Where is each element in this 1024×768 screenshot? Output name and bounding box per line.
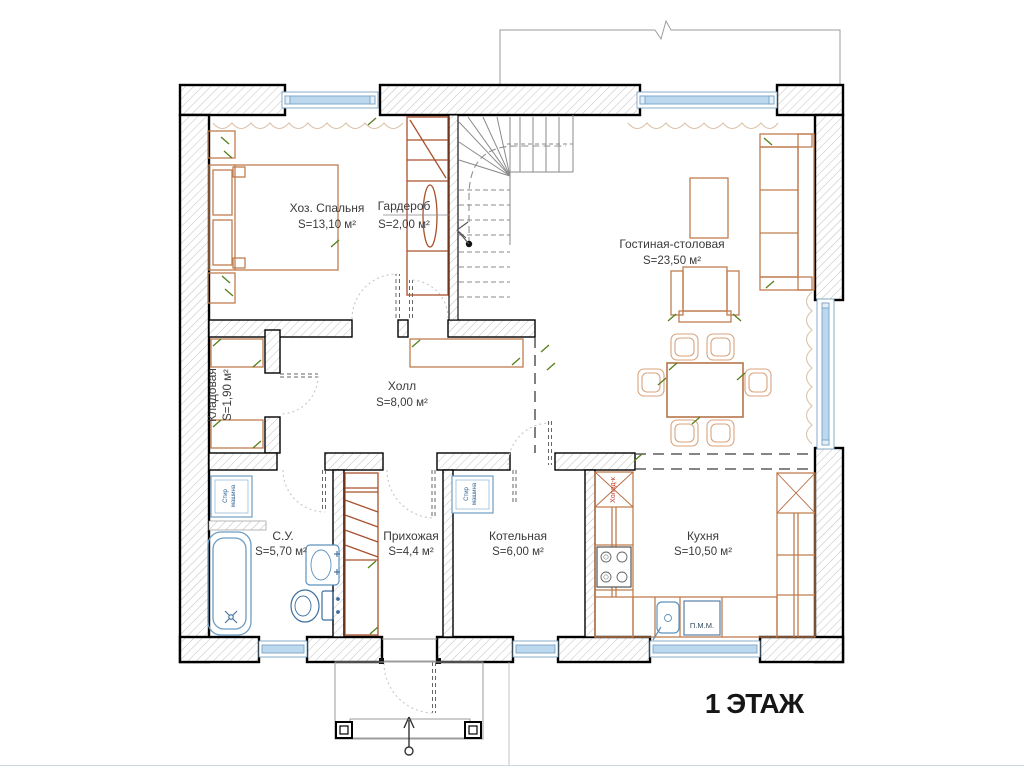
bedroom-curtain (213, 123, 403, 129)
living-label: Гостиная-столовая (619, 237, 724, 251)
floor-plan-canvas: Хоз. Спальня S=13,10 м² Гардероб S=2,00 … (0, 0, 1024, 768)
hall-area: S=8,00 м² (376, 397, 428, 409)
bath-shelf (209, 521, 266, 530)
porch (335, 662, 509, 766)
washer-label-line1: Стир (223, 488, 229, 502)
washer-label-line2: машина (472, 482, 478, 505)
wardrobe-area: S=2,00 м² (378, 219, 430, 231)
boiler-door (508, 421, 552, 503)
kitchen-right-column (777, 473, 815, 637)
sofa (760, 134, 814, 290)
bathroom-sink (306, 545, 340, 585)
stove (597, 547, 631, 587)
entry-area: S=4,4 м² (388, 546, 433, 558)
toilet (291, 590, 339, 622)
nightstand (208, 273, 235, 303)
wardrobe-door (410, 280, 449, 318)
living-window (637, 92, 777, 108)
storage-door (280, 374, 318, 414)
washer-label-line2: машина (231, 484, 237, 507)
bedroom-furniture (208, 131, 338, 303)
boiler-area: S=6,00 м² (492, 546, 544, 558)
living-furniture (638, 134, 814, 446)
coffee-table (690, 178, 728, 238)
floor-title: 1 ЭТАЖ (705, 688, 805, 719)
bedroom-area: S=13,10 м² (298, 219, 356, 231)
boiler-label: Котельная (489, 529, 547, 543)
boiler-window (513, 641, 558, 657)
armchair (671, 267, 739, 322)
entry-closet (345, 473, 378, 635)
dishwasher-label: П.М.М. (690, 621, 714, 630)
bathtub (208, 532, 251, 635)
upper-floor-outline (500, 21, 840, 85)
kitchen-area: S=10,50 м² (674, 546, 732, 558)
interior-walls (209, 115, 635, 637)
staircase (457, 115, 573, 297)
bathroom-window (259, 641, 307, 657)
storage-area: S=1,90 м² (222, 369, 234, 421)
hall-label: Холл (388, 379, 416, 393)
hall-cabinet (410, 339, 523, 367)
bathroom-door (283, 470, 326, 512)
bedroom-label: Хоз. Спальня (290, 201, 365, 215)
entrance-arrow (404, 717, 414, 755)
porch-column (465, 722, 481, 738)
kitchen-sink (653, 602, 679, 640)
bed (209, 165, 338, 270)
entry-door (387, 470, 435, 518)
bedroom-window (282, 92, 378, 108)
wardrobe-label: Гардероб (378, 199, 431, 213)
porch-column (336, 722, 352, 738)
kitchen-window (650, 641, 760, 657)
entry-label: Прихожая (383, 529, 439, 543)
stair-direction-arrow (457, 222, 468, 238)
living-curtain (628, 123, 778, 129)
living-side-window (817, 299, 834, 449)
fridge-label: Холод-к (610, 476, 617, 503)
front-door (379, 639, 441, 713)
bathroom-label: С.У. (272, 529, 293, 543)
dining-table (667, 363, 743, 417)
nightstand (208, 131, 235, 158)
side-curtain (807, 292, 813, 444)
kitchen-label: Кухня (687, 529, 719, 543)
dining-table-set (638, 334, 771, 446)
bath-faucet (225, 611, 237, 623)
bedroom-door (352, 274, 400, 319)
storage-label: Кладовая (205, 368, 219, 422)
washer-label-line1: Стир (464, 486, 470, 500)
living-area: S=23,50 м² (643, 255, 701, 267)
bathroom-area: S=5,70 м² (255, 546, 307, 558)
floor-plan-drawing: Хоз. Спальня S=13,10 м² Гардероб S=2,00 … (0, 0, 1024, 768)
